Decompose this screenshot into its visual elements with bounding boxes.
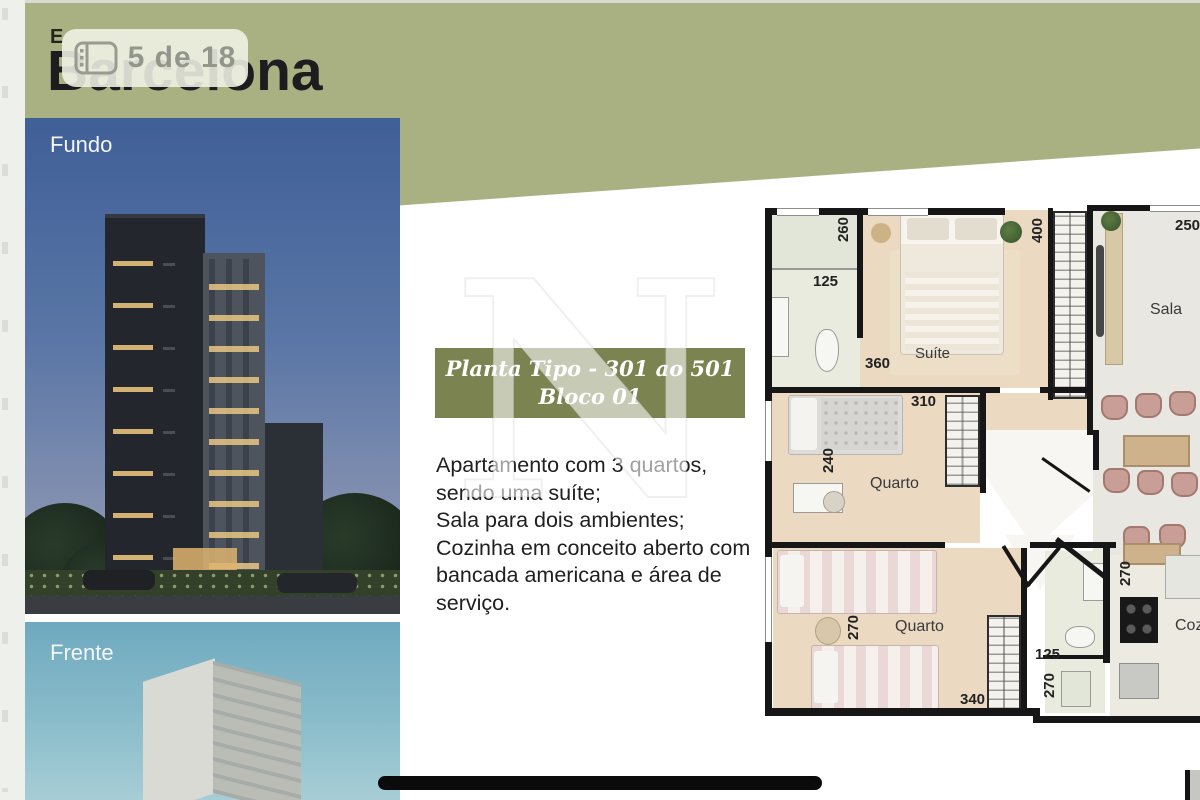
room-label-bedroom2: Quarto <box>895 618 944 636</box>
window <box>1150 205 1200 212</box>
floorplan: 260 125 400 360 250 310 240 270 340 125 … <box>765 205 1200 725</box>
plant <box>1000 221 1022 243</box>
sink <box>769 297 789 357</box>
suite-bed <box>900 213 1004 355</box>
wall <box>765 387 1000 393</box>
street <box>25 596 400 614</box>
plan-banner-line1: Planta Tipo - 301 ao 501 <box>435 355 745 383</box>
description-line: Sala para dois ambientes; <box>436 507 781 535</box>
building-low-block <box>265 423 323 573</box>
lit-windows <box>113 230 153 560</box>
dim-label: 125 <box>1035 646 1060 663</box>
divider-bar <box>378 776 822 790</box>
car <box>83 570 155 590</box>
room-label-suite: Suíte <box>915 345 950 362</box>
description-line: Apartamento com 3 quartos, <box>436 452 781 480</box>
dim-label: 240 <box>820 448 837 473</box>
wall <box>1093 430 1099 470</box>
dim-label: 310 <box>911 393 936 410</box>
room-label-living: Sala <box>1150 301 1182 319</box>
wall <box>1048 208 1053 400</box>
photo-building-front[interactable]: Frente <box>25 622 400 800</box>
pillow <box>907 218 949 240</box>
description-text: Apartamento com 3 quartos, sendo uma suí… <box>436 452 781 617</box>
photo-front-label: Frente <box>50 640 114 666</box>
wall <box>765 708 1033 716</box>
room-label-bedroom1: Quarto <box>870 475 919 493</box>
wall <box>1087 205 1093 435</box>
blanket <box>905 272 999 350</box>
building-wing <box>203 253 265 575</box>
sideboard <box>1105 213 1123 365</box>
dim-label: 360 <box>865 355 890 372</box>
pillow <box>791 398 817 450</box>
gallery-viewport: E Barcelona Fundo Frente Planta Tipo - 3… <box>0 0 1200 800</box>
shower-box <box>1061 671 1091 707</box>
bedroom2-bed <box>777 550 937 614</box>
dim-label: 270 <box>1117 561 1134 586</box>
gallery-icon <box>74 41 118 75</box>
dim-label: 270 <box>845 615 862 640</box>
description-line: serviço. <box>436 590 781 618</box>
building-face-left <box>143 658 215 800</box>
blanket <box>821 398 898 450</box>
plant <box>1101 211 1121 231</box>
top-edge-line <box>0 0 1200 3</box>
photo-back-label: Fundo <box>50 132 112 158</box>
dim-label: 400 <box>1029 218 1046 243</box>
dim-label: 125 <box>813 273 838 290</box>
wall <box>1033 716 1200 723</box>
dim-label: 340 <box>960 691 985 708</box>
pillow <box>780 555 804 607</box>
description-line: bancada americana e área de <box>436 562 781 590</box>
pillow <box>955 218 997 240</box>
page-edge-marks <box>2 8 8 792</box>
wall <box>765 542 945 548</box>
description-line: Cozinha em conceito aberto com <box>436 535 781 563</box>
dining-chair <box>1101 395 1128 420</box>
bedroom2-closet <box>987 615 1021 711</box>
bedroom1-bed <box>788 395 903 455</box>
previous-page-edge[interactable] <box>0 0 25 800</box>
building-tower <box>105 218 205 574</box>
window-grid <box>209 259 259 569</box>
toilet <box>1065 626 1095 648</box>
plan-banner: Planta Tipo - 301 ao 501 Bloco 01 <box>435 348 745 418</box>
desk-chair <box>823 491 845 513</box>
window <box>777 208 819 216</box>
toilet <box>815 329 839 372</box>
description-line: sendo uma suíte; <box>436 480 781 508</box>
basket <box>871 223 891 243</box>
dining-table <box>1123 435 1190 467</box>
nightstand <box>815 617 841 645</box>
kitchen-counter <box>1119 663 1159 699</box>
facade-lines <box>163 230 175 560</box>
plan-edge-fragment <box>1185 770 1200 800</box>
room-label-kitchen: Coz <box>1175 617 1200 635</box>
dim-label: 250 <box>1175 217 1200 234</box>
dining-chair <box>1103 468 1130 493</box>
suite-closet <box>1053 211 1087 399</box>
plan-banner-line2: Bloco 01 <box>435 383 745 411</box>
photo-counter-text: 5 de 18 <box>128 41 237 75</box>
window <box>868 208 928 216</box>
sofa <box>1096 245 1104 337</box>
photo-counter-badge: 5 de 18 <box>62 29 248 87</box>
hall-floor <box>986 430 1093 548</box>
dining-chair <box>1171 472 1198 497</box>
car <box>277 573 357 593</box>
wall <box>857 208 863 338</box>
dim-label: 270 <box>1041 673 1058 698</box>
dim-label: 260 <box>835 217 852 242</box>
photo-building-back[interactable]: Fundo <box>25 118 400 614</box>
cooktop <box>1120 597 1158 643</box>
pillow <box>814 651 838 703</box>
dining-chair <box>1135 393 1162 418</box>
kitchen-cabinet <box>1165 555 1200 599</box>
dining-chair <box>1169 391 1196 416</box>
building-face-right <box>213 661 301 800</box>
wall <box>1103 548 1110 663</box>
bedroom1-closet <box>945 395 980 487</box>
dining-chair <box>1137 470 1164 495</box>
bedroom2-bed <box>811 645 939 711</box>
wall <box>980 393 986 493</box>
